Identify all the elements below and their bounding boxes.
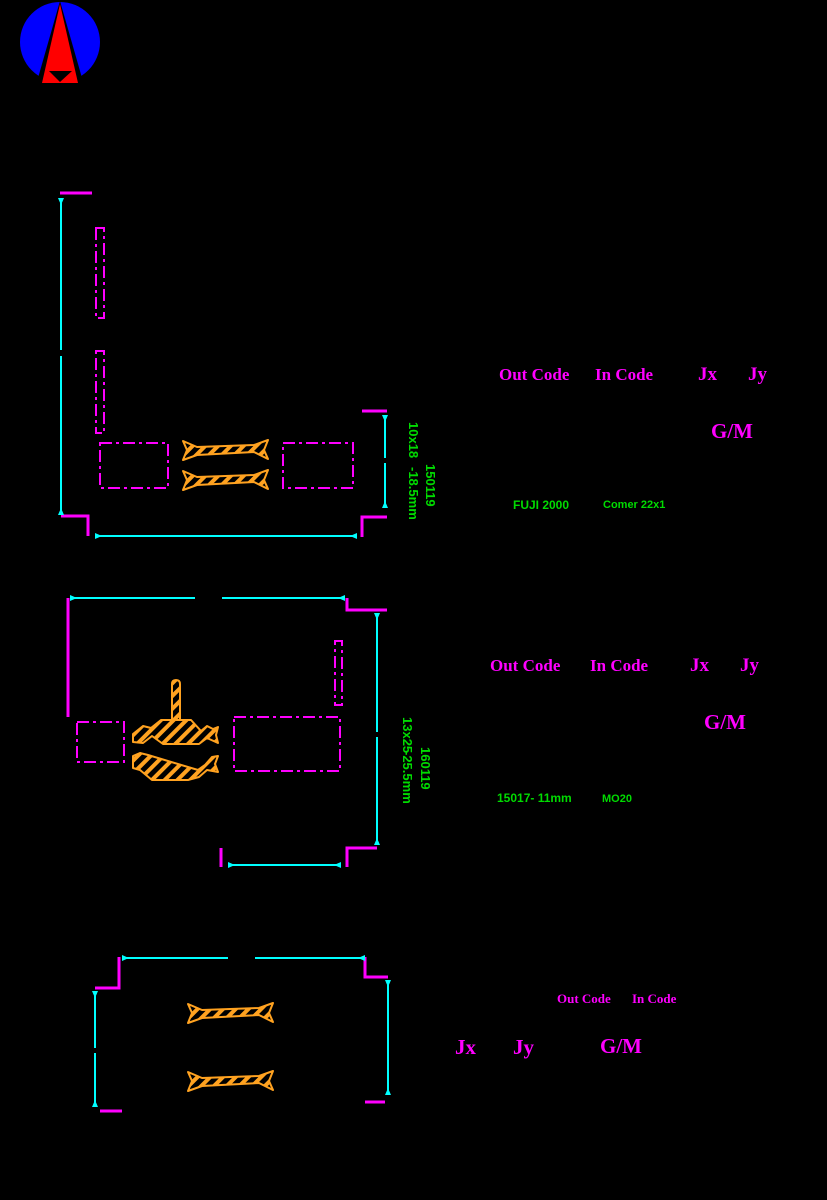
pattern-piece — [188, 1071, 273, 1091]
panel1-dimension-lines — [61, 198, 385, 536]
panel2-in-code-label: In Code — [590, 657, 648, 674]
pattern-piece — [183, 470, 268, 490]
panel2-jx-label: Jx — [690, 656, 709, 675]
panel2-machine-label: 15017- 11mm — [497, 792, 572, 804]
panel2-jy-label: Jy — [740, 656, 759, 675]
marker-drawing — [0, 0, 827, 1200]
panel1-out-code-label: Out Code — [499, 366, 569, 383]
panel3-jx-label: Jx — [455, 1037, 476, 1058]
panel2-date-code: 160119 — [419, 747, 432, 790]
panel2-dimension-arrows — [70, 595, 380, 868]
pattern-piece — [188, 1003, 273, 1023]
panel2-out-code-label: Out Code — [490, 657, 560, 674]
panel1-offset-dimension: -18.5mm — [407, 467, 420, 520]
panel1-machine-label: FUJI 2000 — [513, 499, 569, 511]
pattern-piece — [172, 680, 180, 721]
panel2-gm-label: G/M — [704, 712, 746, 733]
panel1-size-dimension: 10x18 — [407, 422, 420, 458]
pattern-piece — [133, 753, 218, 780]
panel3-pattern-pieces — [188, 1003, 273, 1091]
pattern-piece — [133, 720, 218, 744]
panel1-drawing — [58, 193, 388, 539]
pattern-piece — [183, 440, 268, 460]
panel3-gm-label: G/M — [600, 1036, 642, 1057]
panel1-gm-label: G/M — [711, 421, 753, 442]
panel1-jx-label: Jx — [698, 365, 717, 384]
panel1-tool-label: Comer 22x1 — [603, 500, 665, 511]
panel2-offset-dimension: -25.5mm — [401, 751, 414, 804]
panel1-date-code: 150119 — [424, 464, 437, 507]
panel3-piece-outline — [95, 957, 388, 1111]
cad-viewport: Out Code In Code Jx Jy G/M 10x18 -18.5mm… — [0, 0, 827, 1200]
panel1-pattern-pieces — [183, 440, 268, 490]
panel2-tool-label: MO20 — [602, 794, 632, 805]
panel3-in-code-label: In Code — [632, 992, 676, 1005]
panel2-dimension-lines — [70, 598, 377, 865]
panel3-out-code-label: Out Code — [557, 992, 611, 1005]
panel2-size-dimension: 13x25 — [401, 717, 414, 753]
panel1-jy-label: Jy — [748, 365, 767, 384]
panel1-dimension-arrows — [58, 198, 388, 539]
panel2-seam-lines — [77, 641, 342, 771]
panel1-in-code-label: In Code — [595, 366, 653, 383]
panel1-piece-outline — [60, 193, 387, 537]
panel3-jy-label: Jy — [513, 1037, 534, 1058]
panel2-drawing — [68, 595, 387, 868]
panel2-pattern-pieces — [133, 680, 218, 780]
panel3-drawing — [92, 955, 391, 1111]
